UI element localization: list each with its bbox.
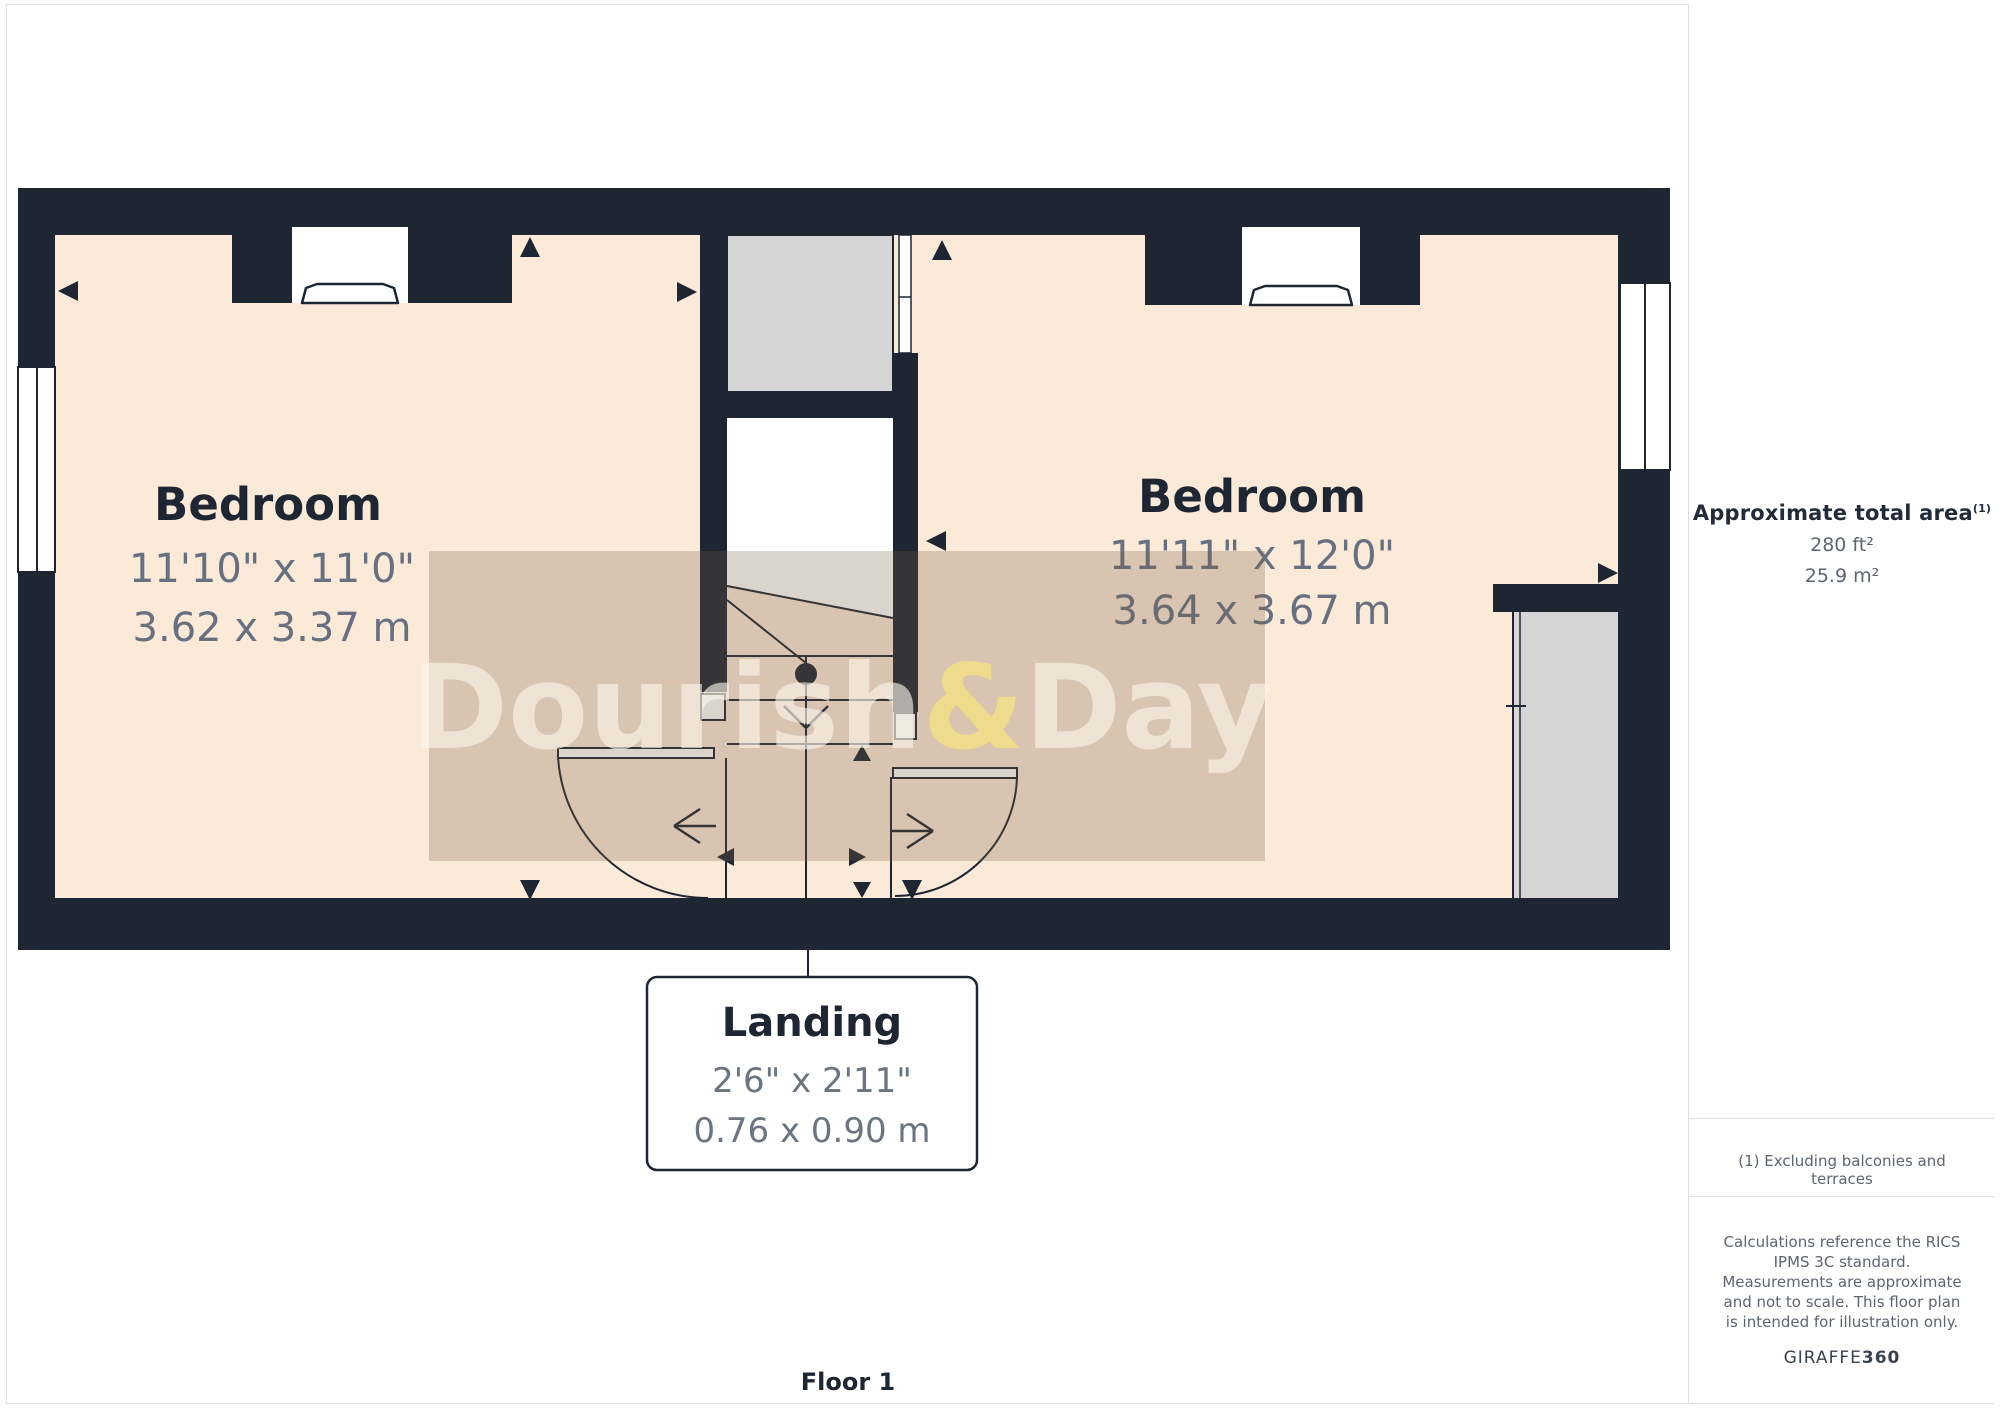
floor-label: Floor 1 xyxy=(801,1368,896,1396)
brand-name: GIRAFFE xyxy=(1784,1348,1862,1368)
rics-disclaimer: Calculations reference the RICS IPMS 3C … xyxy=(1717,1232,1967,1332)
room-dim-imperial-left: 11'10" x 11'0" xyxy=(129,546,415,592)
total-area-block: Approximate total area(1) 280 ft² 25.9 m… xyxy=(1689,501,1995,587)
landing-callout: Landing 2'6" x 2'11" 0.76 x 0.90 m xyxy=(647,950,977,1170)
sidebar-divider xyxy=(1689,1196,1995,1197)
room-name-right: Bedroom xyxy=(1138,470,1366,523)
wardrobe-void xyxy=(1512,612,1618,898)
window-sill-icon-right xyxy=(1250,286,1352,305)
watermark: Dourish&Day xyxy=(411,551,1273,861)
total-area-metric: 25.9 m² xyxy=(1689,565,1995,587)
room-dim-metric-left: 3.62 x 3.37 m xyxy=(133,605,412,651)
watermark-text: Dourish&Day xyxy=(411,639,1273,776)
stair-void xyxy=(727,235,893,392)
total-area-title-text: Approximate total area xyxy=(1693,501,1973,525)
wall-bottom xyxy=(18,898,1670,950)
info-sidebar: Approximate total area(1) 280 ft² 25.9 m… xyxy=(1688,4,1995,1403)
room-name-left: Bedroom xyxy=(154,478,382,531)
callout-dim-metric: 0.76 x 0.90 m xyxy=(693,1111,930,1151)
brand-number: 360 xyxy=(1862,1348,1901,1368)
total-area-imperial: 280 ft² xyxy=(1689,534,1995,556)
floorplan-drawing: Bedroom 11'10" x 11'0" 3.62 x 3.37 m Bed… xyxy=(0,0,1680,1415)
callout-dim-imperial: 2'6" x 2'11" xyxy=(712,1061,912,1101)
stair-top-door-icon xyxy=(899,235,911,353)
callout-room-name: Landing xyxy=(722,1000,902,1046)
balconies-footnote: (1) Excluding balconies and terraces xyxy=(1707,1152,1977,1188)
window-sill-icon-left xyxy=(302,284,398,303)
floorplan-page: Bedroom 11'10" x 11'0" 3.62 x 3.37 m Bed… xyxy=(0,0,2000,1415)
wall-stair-mid xyxy=(727,392,918,418)
sidebar-divider xyxy=(1689,1118,1995,1119)
giraffe360-logo: GIRAFFE360 xyxy=(1689,1348,1995,1368)
total-area-footnote-ref: (1) xyxy=(1973,502,1991,515)
total-area-title: Approximate total area(1) xyxy=(1689,501,1995,525)
